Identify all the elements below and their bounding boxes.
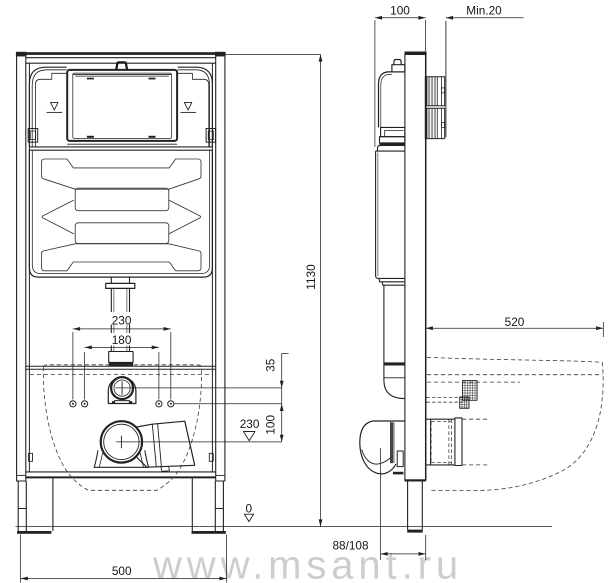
svg-text:88/108: 88/108 — [332, 539, 369, 553]
svg-text:100: 100 — [264, 415, 278, 435]
svg-text:230: 230 — [240, 417, 260, 431]
svg-text:0: 0 — [246, 502, 253, 516]
svg-text:500: 500 — [112, 564, 132, 578]
svg-text:180: 180 — [112, 333, 132, 347]
svg-text:1130: 1130 — [304, 264, 318, 290]
svg-text:230: 230 — [112, 314, 132, 328]
svg-text:520: 520 — [505, 315, 525, 329]
svg-text:Min.20: Min.20 — [466, 3, 502, 17]
svg-text:35: 35 — [264, 358, 278, 372]
svg-text:www.msant.ru: www.msant.ru — [152, 544, 463, 583]
svg-text:100: 100 — [390, 3, 410, 17]
